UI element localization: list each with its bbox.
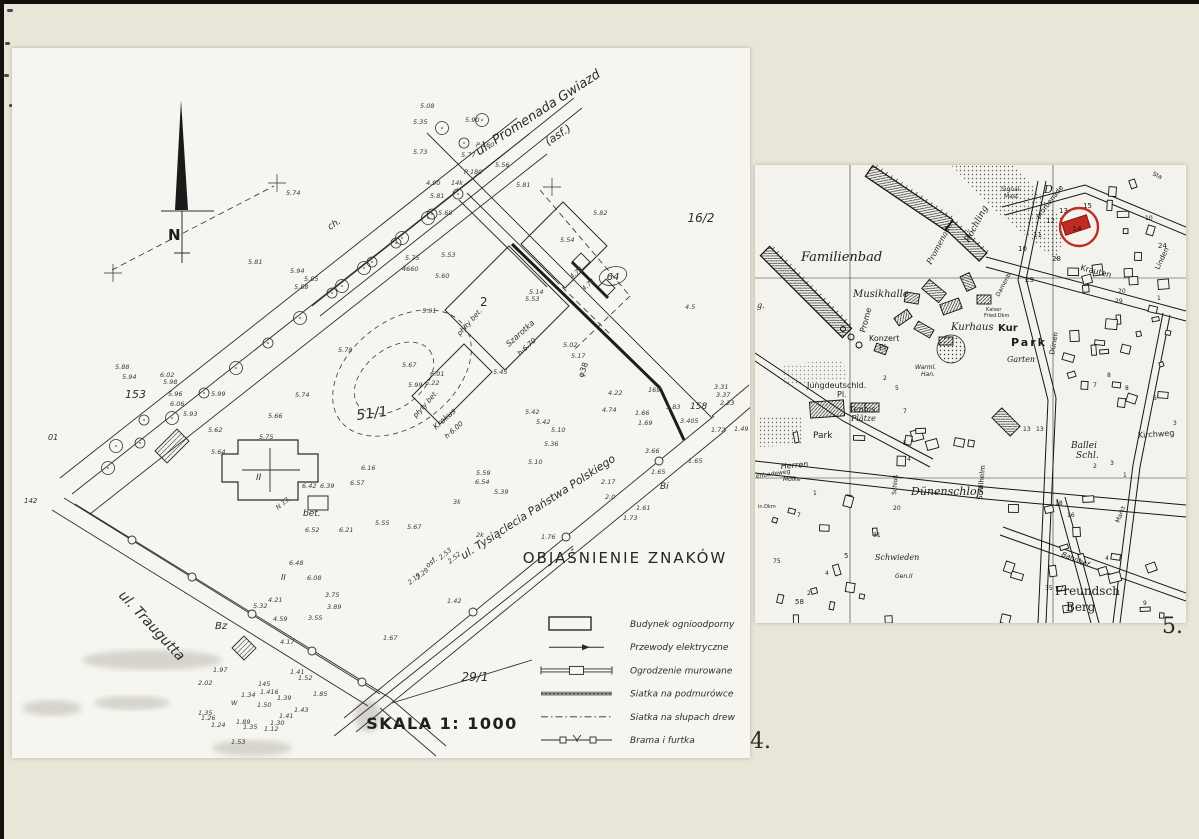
map-label: 6.06 (170, 400, 184, 408)
map-label: 5.59 (476, 469, 490, 477)
map-label: 5.96 (168, 390, 182, 398)
map-label: 5.93 (183, 410, 197, 418)
map-label: 28 (1052, 255, 1061, 263)
map-label: Tennis (849, 405, 875, 414)
map-label: 5.82 (593, 209, 607, 217)
map-label: 6.39 (320, 482, 334, 490)
map-label: 20 (1118, 288, 1126, 295)
map-label: 4.90 (426, 179, 440, 187)
map-label: 11 (1033, 231, 1042, 239)
map-label: 16/2 (688, 211, 715, 225)
map-label: 4660 (402, 265, 419, 273)
map-label: 1.85 (313, 690, 327, 698)
map-label: 9 (1143, 600, 1147, 607)
map-label: 4.74 (602, 406, 616, 414)
map-label: 8 (1107, 372, 1111, 379)
map-label: 5.53 (525, 295, 539, 303)
map-label: 5.99 (211, 390, 225, 398)
map-label: 5.67 (402, 361, 417, 369)
map-label: 10 (1018, 245, 1027, 253)
map-label: Schl. (1076, 451, 1099, 461)
map-label: Siatka na podmurówce (630, 689, 734, 700)
map-label: 64 (607, 272, 620, 283)
map-label: 153 (125, 388, 146, 401)
map-label: 24 (1158, 242, 1167, 250)
map-label: OBJAŚNIENIE ZNAKÓW (523, 548, 727, 567)
map-label: Bi (660, 482, 669, 492)
map-label: 5.81 (248, 258, 262, 266)
map-label: 1.72 (711, 426, 725, 434)
map-label: 2.0 (605, 493, 615, 501)
map-label: Gen.II (895, 573, 913, 580)
map-label: 5.94 (122, 373, 136, 381)
map-label: Ballei (1070, 441, 1097, 451)
map-label: 4 (907, 456, 911, 463)
map-label: 6.57 (350, 479, 365, 487)
map-label: 5.74 (286, 189, 300, 197)
map-label: 4.21 (268, 596, 282, 604)
map-label: 5.56 (495, 161, 509, 169)
map-label: Kurhaus (950, 322, 993, 333)
map-label: II (256, 473, 262, 483)
map-label: 6.42 (302, 482, 316, 490)
city-map-drawing: 14FamilienbadMusikhallePromenadeRöchling… (755, 165, 1186, 623)
map-label: SKALA 1: 1000 (366, 714, 518, 733)
photo-edge-left (0, 0, 4, 839)
map-label: 5.81 (430, 192, 444, 200)
map-label: 10 (1145, 215, 1153, 222)
map-label: 3.37 (716, 391, 731, 399)
map-label: 7 (1093, 382, 1097, 389)
map-label: 5.99 (408, 381, 422, 389)
map-label: 6.21 (339, 526, 353, 534)
map-label: 5.90 (465, 116, 479, 124)
dust-speck (7, 9, 13, 12)
map-label: 2 (1093, 463, 1097, 470)
map-label: 1 (1123, 472, 1127, 479)
map-label: Kur (998, 323, 1018, 334)
map-label: 1.12 (264, 725, 278, 733)
map-label: 29 (1115, 298, 1123, 305)
map-label: Ogrodzenie murowane (630, 666, 733, 676)
map-label: Przewody elektryczne (630, 643, 729, 653)
map-label: 13 (1059, 207, 1068, 215)
map-label: 1.416 (260, 688, 279, 696)
map-label: 01 (48, 433, 58, 442)
map-label: 5.35 (413, 118, 427, 126)
map-label: 169 (648, 386, 660, 394)
map-label: 142 (24, 497, 38, 505)
map-label: 2.02 (198, 679, 212, 687)
city-map-scan: 14FamilienbadMusikhallePromenadeRöchling… (755, 165, 1186, 623)
map-label: Familienbad (800, 250, 882, 265)
album-page: N5.085.355.905.735.77P·1605.56P·18014k5.… (0, 0, 1199, 839)
map-label: 5.02 (563, 341, 577, 349)
map-label: N (168, 226, 181, 244)
map-label: Warml. (915, 364, 936, 371)
map-label: 29/1 (462, 670, 489, 684)
map-label: Berg (1066, 600, 1096, 614)
map-label: 5.64 (211, 448, 225, 456)
map-label: 1.53 (231, 738, 245, 746)
map-label: 14 (1072, 225, 1082, 233)
map-label: 20 (893, 505, 901, 512)
map-label: 16 (1067, 512, 1075, 519)
map-label: 1.34 (241, 691, 255, 699)
map-label: Konzert (869, 334, 899, 343)
map-label: 3.89 (327, 603, 341, 611)
map-label: Fried.Dkm (984, 313, 1010, 319)
map-label: Pl. (879, 343, 889, 352)
map-label: 13 (1036, 426, 1044, 433)
map-label: Dünenschloß (910, 485, 984, 498)
map-label: 12 (1046, 217, 1055, 225)
map-label: 6.16 (361, 464, 375, 472)
map-label: 3 (1110, 460, 1114, 467)
map-label: 6.08 (307, 574, 321, 582)
site-plan-scan: N5.085.355.905.735.77P·1605.56P·18014k5.… (12, 48, 750, 758)
map-label: 4 (825, 570, 829, 577)
map-label: 5.75 (259, 433, 273, 441)
map-label: 5 (844, 552, 848, 560)
map-label: 1.41 (290, 668, 304, 676)
map-label: Mast (1004, 193, 1019, 200)
figure-number-5: 5. (1162, 614, 1183, 639)
dust-speck (5, 42, 10, 45)
map-label: 2 (480, 295, 488, 309)
map-label: 1.39 (277, 694, 291, 702)
map-label: Pl. (837, 390, 847, 399)
map-label: 5.62 (208, 426, 222, 434)
map-label: 3.66 (645, 447, 659, 455)
map-label: 5.54 (560, 236, 574, 244)
map-label: Plätze (850, 414, 876, 423)
map-label: 4.5 (685, 303, 695, 311)
map-label: 5.17 (571, 352, 586, 360)
dust-speck (4, 74, 9, 77)
map-label: 1.49 (734, 425, 748, 433)
map-label: II (281, 573, 286, 582)
photo-edge-top (0, 0, 1199, 4)
map-label: 2.17 (601, 478, 616, 486)
map-label: 5.67 (407, 523, 422, 531)
map-label: 1 (1157, 295, 1161, 302)
map-label: 5.88 (115, 363, 129, 371)
map-label: Musikhalle (852, 289, 909, 300)
map-label: 1.42 (447, 597, 461, 605)
map-label: 5.74 (295, 391, 309, 399)
map-label: 5.75 (405, 254, 419, 262)
map-label: 18 (1055, 500, 1063, 507)
map-label: 5.53 (441, 251, 455, 259)
map-label: 5.98 (163, 378, 177, 386)
map-label: 5.10 (528, 458, 542, 466)
map-label: 5 (895, 385, 899, 392)
map-label: 2.23 (720, 399, 734, 407)
map-label: 6.22 (425, 379, 439, 387)
map-label: 2 (883, 375, 887, 382)
map-label: 5.81 (516, 181, 530, 189)
map-label: P·180 (464, 168, 482, 176)
map-label: Signal- (1001, 186, 1022, 193)
figure-number-4: 4. (750, 729, 771, 754)
map-label: 4 (1105, 555, 1109, 562)
map-label: 14k (451, 179, 463, 187)
map-label: 15 (1083, 202, 1092, 210)
map-label: 5.68 (438, 209, 452, 217)
map-label: 5.08 (420, 102, 434, 110)
map-label: 5.78 (338, 346, 352, 354)
map-label: 5 (903, 440, 907, 447)
map-label: 7 (903, 408, 907, 415)
map-label: 1 (813, 490, 817, 497)
map-label: Han. (921, 371, 935, 378)
map-label: 3.405 (680, 417, 699, 425)
map-label: D (1043, 183, 1053, 196)
map-label: 5.66 (268, 412, 282, 420)
map-label: 6.52 (305, 526, 319, 534)
map-label: 3.31 (714, 383, 728, 391)
map-label: Budynek ognioodporny (630, 620, 735, 630)
map-label: 158 (690, 402, 707, 412)
map-label: 6 (1153, 395, 1157, 402)
map-label: bet. (303, 509, 321, 519)
legend-symbol-mesh-line (541, 692, 612, 696)
map-label: 1.50 (257, 701, 271, 709)
map-label: 29 (1025, 276, 1034, 284)
map-label: 5.94 (290, 267, 304, 275)
map-label: Garten (1007, 355, 1035, 364)
map-label: 1.69 (638, 419, 652, 427)
map-label: 58 (795, 598, 804, 606)
map-label: Schwieden (875, 553, 919, 562)
map-label: 1.65 (651, 468, 665, 476)
map-label: 5.73 (413, 148, 427, 156)
map-label: g. (757, 301, 765, 310)
map-label: 6.48 (289, 559, 303, 567)
map-label: 5.32 (253, 602, 267, 610)
map-label: 3 (1173, 420, 1177, 427)
map-label: 5.85 (304, 275, 318, 283)
map-label: Jungdeutschld. (806, 381, 866, 390)
map-label: 1.43 (294, 706, 308, 714)
map-label: 5.45 (493, 368, 507, 376)
map-label: 1.73 (623, 514, 637, 522)
map-label: 4.59 (273, 615, 287, 623)
map-label: Freundsch (1055, 584, 1120, 598)
map-label: W (231, 699, 238, 707)
map-label: 1.65 (688, 457, 702, 465)
map-label: 1.24 (211, 721, 225, 729)
map-label: Brama i furtka (630, 736, 695, 746)
map-label: 2 (807, 590, 811, 597)
map-label: 13 (1023, 426, 1031, 433)
map-label: 6.54 (475, 478, 489, 486)
map-label: 4.17 (280, 638, 295, 646)
map-label: Park (1011, 336, 1047, 349)
map-label: 3.55 (308, 614, 322, 622)
map-label: 5.10 (551, 426, 565, 434)
map-label: 5.39 (494, 488, 508, 496)
map-label: 145 (258, 680, 270, 688)
map-label: 1.76 (541, 533, 555, 541)
map-label: Bz (215, 621, 228, 632)
map-label: 7 (797, 512, 801, 519)
map-label: 4.22 (608, 389, 622, 397)
map-label: 3k (453, 498, 461, 506)
map-label: 5.91 (422, 307, 436, 315)
map-label: 5.42 (525, 408, 539, 416)
map-label: 1.61 (636, 504, 650, 512)
map-label: in.Dkm (758, 504, 776, 510)
map-label: 5.42 (536, 418, 550, 426)
map-label: 8 (1125, 385, 1129, 392)
map-label: Siatka na słupach drew (630, 713, 736, 723)
map-label: 1.67 (383, 634, 398, 642)
site-plan-drawing: N5.085.355.905.735.77P·1605.56P·18014k5.… (12, 48, 750, 758)
map-label: 5.60 (435, 272, 449, 280)
map-label: 35 (1045, 585, 1053, 592)
map-label: 1.97 (213, 666, 228, 674)
map-label: 1.66 (635, 409, 649, 417)
map-label: 5.36 (544, 440, 558, 448)
map-label: 3.83 (666, 403, 680, 411)
map-label: 75 (773, 558, 781, 565)
map-label: Mölke (783, 476, 801, 483)
map-label: 6.01 (430, 370, 444, 378)
map-label: 5.88 (294, 283, 308, 291)
map-label: 31 (873, 532, 881, 539)
map-label: 1.35 (243, 723, 257, 731)
map-label: 5.77 (461, 151, 476, 159)
map-label: 5.55 (375, 519, 389, 527)
map-label: 3.75 (325, 591, 339, 599)
map-label: Park (813, 431, 833, 441)
